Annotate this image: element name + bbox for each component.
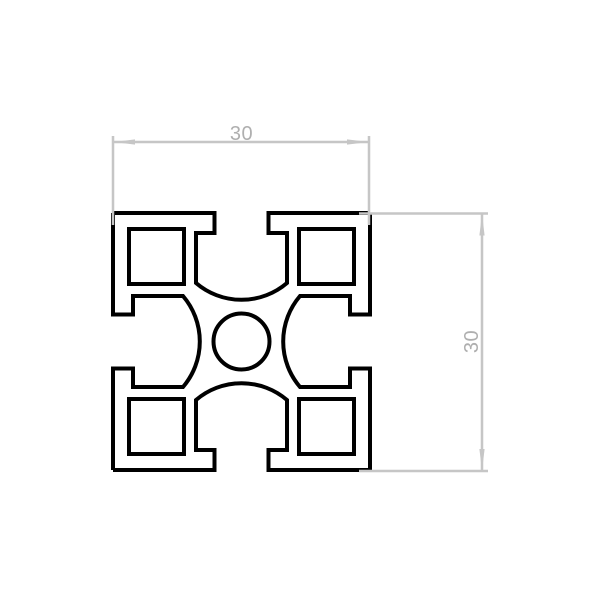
- outer-contour: [113, 213, 370, 470]
- drawing-canvas: 30 30: [0, 0, 600, 600]
- outer-contour-bottom-tslot: [113, 383, 370, 470]
- width-arrow-left-icon: [113, 139, 135, 144]
- center-bore-circle: [214, 314, 270, 370]
- corner-cavity-top-left: [129, 229, 184, 284]
- height-dimension: 30: [359, 214, 488, 472]
- outer-contour-right-tslot: [283, 213, 370, 470]
- height-arrow-down-icon: [479, 449, 484, 471]
- width-dimension-label: 30: [230, 123, 253, 145]
- corner-cavity-bottom-left: [129, 399, 184, 454]
- outer-contour-left-tslot: [113, 213, 200, 470]
- corner-cavity-bottom-right: [299, 399, 354, 454]
- width-arrow-right-icon: [347, 139, 369, 144]
- technical-drawing: 30 30: [0, 0, 600, 600]
- outer-contour-top-tslot: [113, 213, 370, 300]
- profile-outline: [113, 213, 370, 470]
- corner-cavity-top-right: [299, 229, 354, 284]
- corner-cavities: [129, 229, 354, 454]
- height-arrow-up-icon: [479, 214, 484, 236]
- width-dimension: 30: [113, 123, 369, 225]
- height-dimension-label: 30: [461, 330, 483, 353]
